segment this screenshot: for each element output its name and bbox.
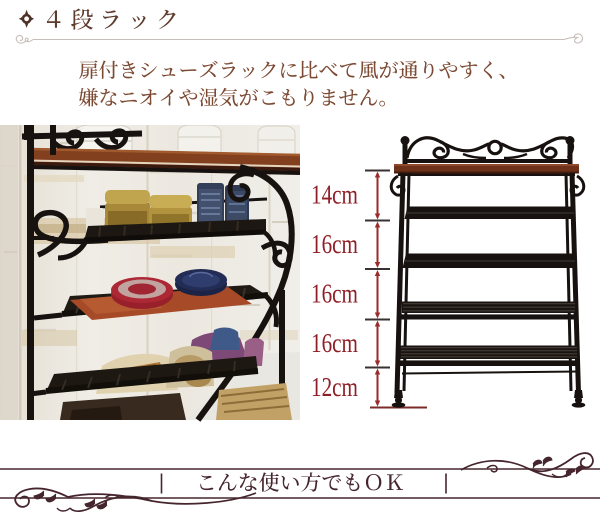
svg-text:16cm: 16cm (311, 229, 358, 259)
svg-text:14cm: 14cm (311, 180, 358, 210)
svg-text:16cm: 16cm (311, 328, 358, 358)
svg-text:16cm: 16cm (311, 279, 358, 309)
svg-text:12cm: 12cm (311, 372, 358, 402)
